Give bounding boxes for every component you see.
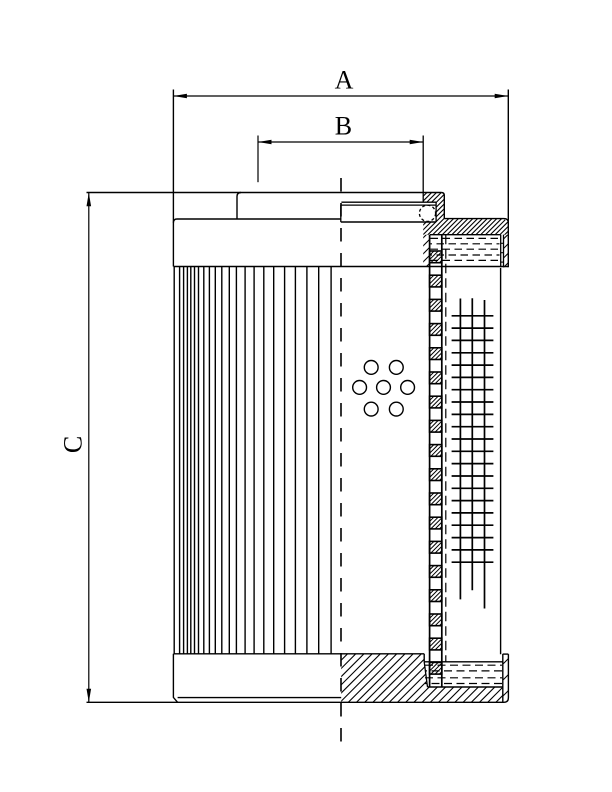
svg-text:B: B: [335, 112, 352, 141]
svg-text:A: A: [335, 66, 354, 95]
svg-text:C: C: [58, 436, 87, 453]
